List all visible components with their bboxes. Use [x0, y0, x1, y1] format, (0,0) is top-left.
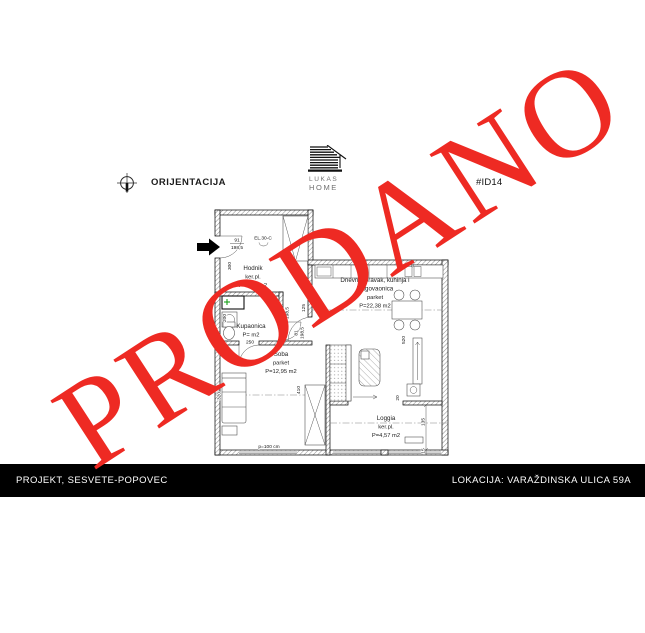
dim-135: 135	[421, 418, 427, 426]
orientation-compass-icon	[116, 172, 138, 194]
room-floor-hodnik: ker.pl.	[245, 275, 261, 281]
living-door-width: 81	[294, 330, 300, 336]
dim-520: 520	[401, 336, 407, 344]
room-floor-soba: parket	[273, 361, 290, 367]
loggia-arrow	[353, 395, 377, 399]
dim-320: 320	[217, 392, 223, 400]
footer-project-label: PROJEKT, SESVETE-POPOVEC	[16, 475, 168, 486]
logo-text-lukas: LUKAS	[309, 176, 338, 183]
electric-label: EL.30-C	[254, 236, 272, 242]
lounger	[359, 349, 380, 386]
dim-410: 410	[296, 386, 302, 394]
room-label-dnevni-2: blagovaonica	[357, 286, 394, 293]
room-label-hodnik: Hodnik	[243, 265, 263, 272]
room-label-dnevni-1: Dnevni boravak, kuhinja i	[340, 277, 409, 284]
windows	[239, 450, 441, 455]
dining-table	[392, 290, 422, 330]
bath-door-width: 71	[279, 310, 285, 316]
hall-wardrobe	[283, 216, 308, 261]
dim-125: 125	[301, 304, 307, 312]
room-floor-loggia: ker.pl.	[378, 425, 394, 431]
dim-300: 300	[227, 262, 233, 270]
bedroom-wardrobe	[305, 385, 325, 445]
entrance-door-height: 198,5	[231, 245, 243, 251]
logo-text-home: HOME	[309, 183, 338, 192]
bedroom-couch	[222, 373, 246, 435]
dimension-line	[424, 403, 428, 455]
unit-id-label: #ID14	[476, 177, 502, 188]
parapet-label: p=100 cm	[258, 444, 279, 450]
room-area-soba: P=12,95 m2	[265, 369, 296, 375]
footer-location-label: LOKACIJA: VARAŽDINSKA ULICA 59A	[452, 475, 631, 486]
radiator	[413, 338, 422, 384]
room-area-kupaonica: P= m2	[243, 333, 260, 339]
orientation-label: ORIJENTACIJA	[151, 177, 226, 188]
loggia-vent	[405, 437, 423, 443]
room-area-dnevni: P=22,38 m2	[359, 304, 390, 310]
entrance-arrow-icon	[197, 239, 220, 256]
room-label-kupaonica: Kupaonica	[236, 323, 266, 330]
lukas-home-logo: LUKAS HOME	[302, 145, 352, 197]
dim-15: 15	[421, 448, 427, 454]
dim-20: 20	[395, 395, 401, 401]
floor-plan: Hodnik ker.pl. P=7,57 m2 Kupaonica P= m2…	[193, 208, 453, 464]
room-label-loggia: Loggia	[377, 415, 396, 422]
room-area-hodnik: P=7,57 m2	[239, 283, 267, 289]
footer-bar: PROJEKT, SESVETE-POPOVEC LOKACIJA: VARAŽ…	[0, 464, 645, 497]
sofa	[330, 345, 351, 401]
dim-250: 250	[246, 340, 254, 346]
dim-200: 200	[222, 314, 228, 322]
bath-door-height: 198,5	[285, 307, 291, 319]
floor-box	[407, 384, 420, 396]
entrance-door-width: 91	[234, 238, 240, 244]
living-door-height: 198,5	[300, 327, 306, 339]
room-floor-dnevni: parket	[367, 295, 384, 301]
room-label-soba: Soba	[274, 351, 289, 358]
room-area-loggia: P=4,57 m2	[372, 433, 400, 439]
